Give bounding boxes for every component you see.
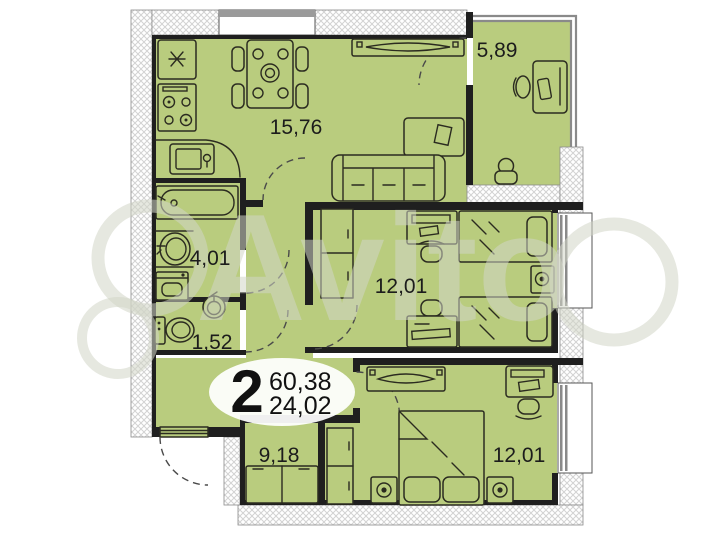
window-bedroom-middle — [558, 213, 592, 308]
wall-right-c — [560, 473, 583, 505]
label-balcony-area: 5,89 — [477, 39, 518, 62]
wall-bottom-left — [224, 437, 240, 505]
nightstand-lamp-icon — [371, 477, 397, 503]
pillow — [404, 477, 440, 502]
label-bathroom-area: 4,01 — [190, 247, 231, 270]
floor-plan-canvas: Avito 15,76 5,89 4,01 1,52 12,01 9,18 12… — [0, 0, 720, 540]
tv-icon — [352, 39, 464, 56]
nightstand-lamp-icon — [531, 266, 554, 293]
wall-top-b — [315, 10, 467, 35]
entrance-door-icon — [160, 427, 208, 485]
single-bed-icon — [459, 211, 552, 262]
wall-bottom — [238, 505, 583, 525]
chair-icon — [296, 84, 308, 108]
stove-icon — [158, 84, 196, 131]
media-cabinet-icon — [404, 118, 464, 156]
kitchen-sink-icon — [170, 144, 214, 174]
double-bed-icon — [399, 411, 484, 505]
wall-right-b — [560, 308, 583, 383]
wardrobe-icon — [321, 209, 353, 298]
wall-top-a — [152, 10, 219, 35]
desk-icon — [407, 211, 457, 244]
label-bedroom-middle-area: 12,01 — [375, 275, 428, 298]
chair-icon — [232, 47, 244, 71]
label-room-small-area: 9,18 — [259, 444, 300, 467]
bathtub-icon — [156, 186, 238, 219]
chair-icon — [232, 84, 244, 108]
badge-rooms-count: 2 — [230, 358, 263, 425]
desk-icon — [506, 366, 553, 397]
washing-machine-icon — [156, 272, 188, 300]
badge-living-area: 24,02 — [269, 392, 332, 420]
desk-chair-icon — [514, 76, 531, 98]
desk-icon — [407, 316, 457, 347]
chair-icon — [296, 47, 308, 71]
pillow — [443, 477, 479, 502]
label-bedroom-bottom-area: 12,01 — [493, 444, 546, 467]
wardrobe-icon — [327, 428, 353, 504]
window-top — [219, 10, 315, 35]
fridge-icon — [158, 40, 196, 79]
desk-icon — [533, 61, 567, 113]
dresser-icon — [367, 367, 445, 391]
wall-left — [131, 10, 152, 437]
label-kitchen-living-area: 15,76 — [270, 116, 323, 139]
area-badge: 2 60,38 24,02 — [209, 358, 355, 426]
nightstand-lamp-icon — [487, 477, 513, 503]
sofa-bed-icon — [246, 466, 318, 503]
sofa-icon — [332, 155, 445, 201]
window-bedroom-bottom — [558, 383, 592, 473]
single-bed-icon — [459, 297, 552, 347]
toilet-icon — [155, 317, 194, 344]
label-toilet-area: 1,52 — [192, 331, 233, 354]
floor-plan: Avito 15,76 5,89 4,01 1,52 12,01 9,18 12… — [0, 0, 720, 540]
